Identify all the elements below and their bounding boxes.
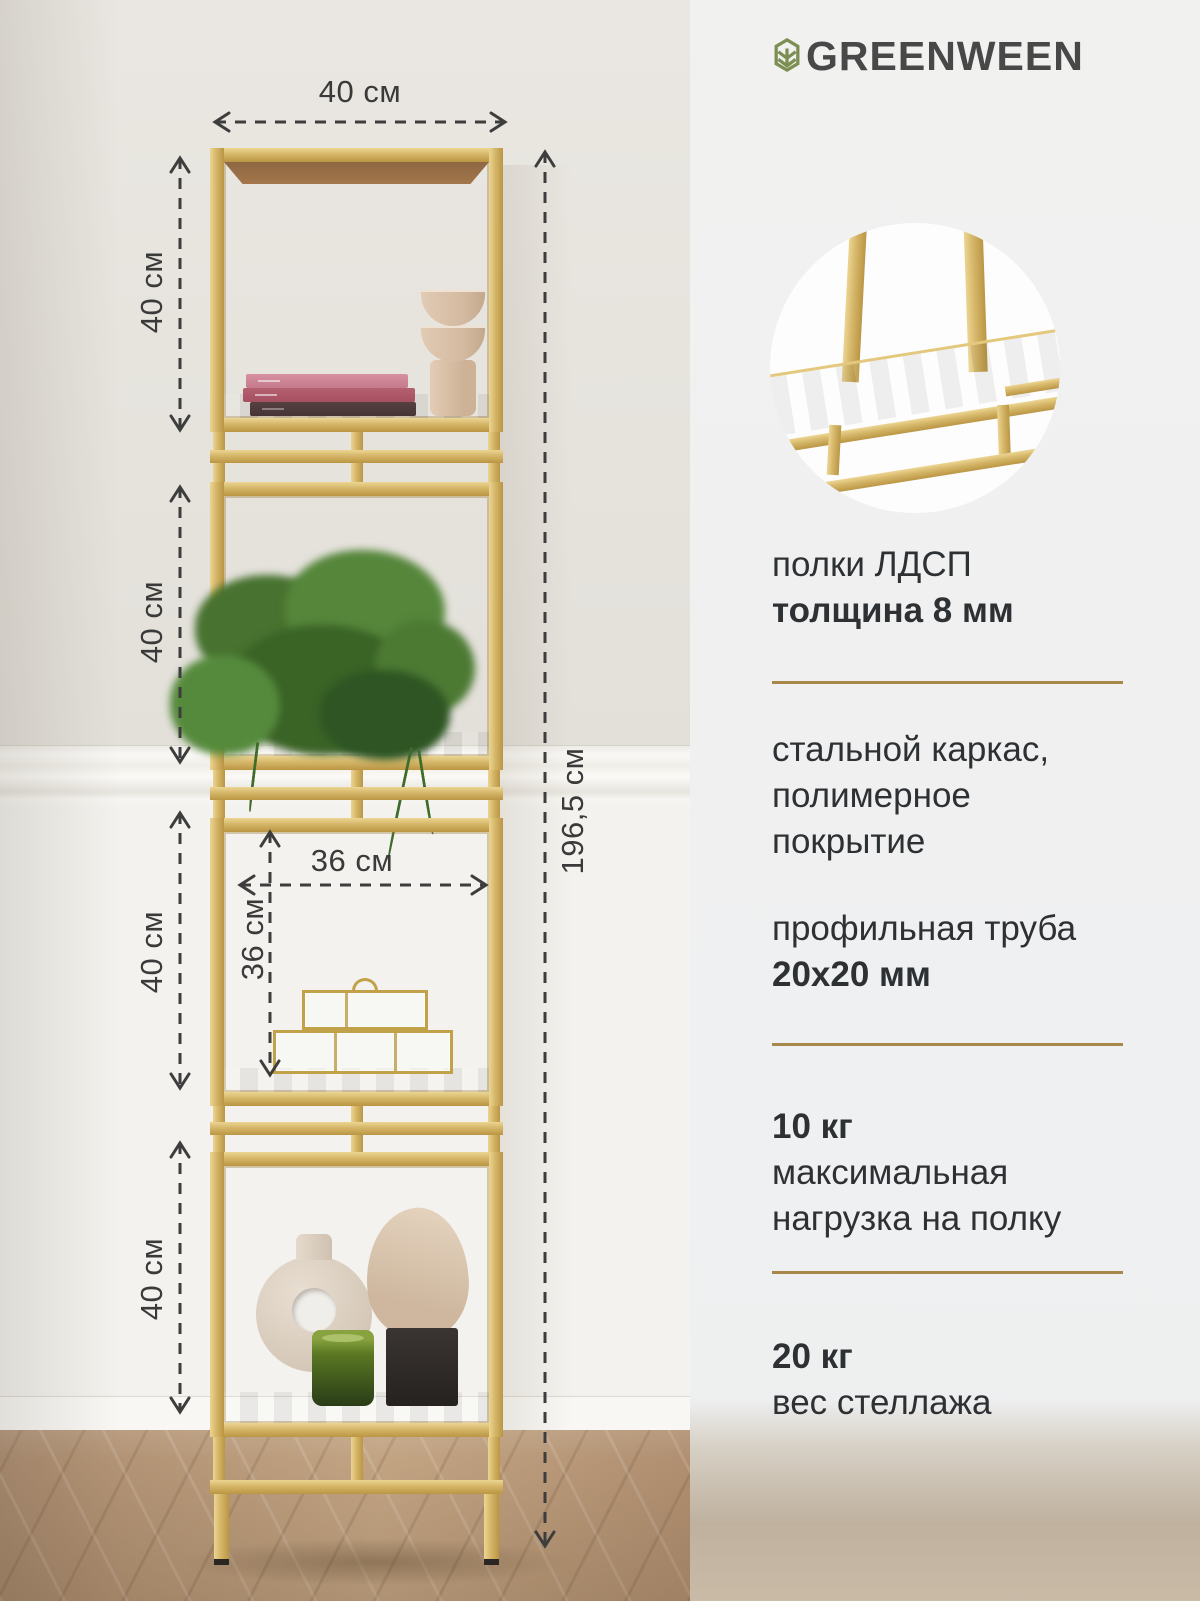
spec-weight-value: 20 кг (772, 1334, 992, 1380)
spec-frame-line2: полимерное (772, 773, 1049, 819)
dim-label-module4: 40 см (134, 1209, 170, 1349)
info-panel-floor-blur (690, 1398, 1200, 1601)
spec-frame: стальной каркас, полимерное покрытие (772, 727, 1049, 865)
dim-label-top-width: 40 см (215, 74, 505, 110)
gold-divider (772, 1043, 1123, 1046)
brand-leaf-icon (774, 37, 800, 73)
dim-label-module1: 40 см (134, 222, 170, 362)
dim-label-inner-width: 36 см (290, 843, 414, 879)
dim-label-module3: 40 см (134, 882, 170, 1022)
spec-weight: 20 кг вес стеллажа (772, 1334, 992, 1426)
gold-divider (772, 681, 1123, 684)
product-card: 40 см 40 см 40 см 40 см 40 см 196,5 см 3… (0, 0, 1200, 1601)
spec-load-line2: нагрузка на полку (772, 1196, 1061, 1242)
spec-tube-line1: профильная труба (772, 906, 1076, 952)
spec-shelves: полки ЛДСП толщина 8 мм (772, 542, 1014, 634)
spec-weight-label: вес стеллажа (772, 1380, 992, 1426)
detail-frame-post (827, 425, 842, 476)
dim-label-module2: 40 см (134, 552, 170, 692)
spec-load-value: 10 кг (772, 1104, 1061, 1150)
spec-shelves-line1: полки ЛДСП (772, 542, 1014, 588)
gold-divider (772, 1271, 1123, 1274)
dim-label-total-height: 196,5 см (555, 731, 591, 891)
spec-load: 10 кг максимальная нагрузка на полку (772, 1104, 1061, 1242)
spec-frame-line3: покрытие (772, 819, 1049, 865)
spec-frame-line1: стальной каркас, (772, 727, 1049, 773)
spec-load-line1: максимальная (772, 1150, 1061, 1196)
spec-tube-line2: 20x20 мм (772, 952, 1076, 998)
room-photo: 40 см 40 см 40 см 40 см 40 см 196,5 см 3… (0, 0, 690, 1601)
brand-logo: GREENWEEN (774, 33, 1174, 77)
spec-tube: профильная труба 20x20 мм (772, 906, 1076, 998)
spec-shelves-line2: толщина 8 мм (772, 588, 1014, 634)
detail-photo-circle (770, 223, 1060, 513)
dim-label-inner-depth: 36 см (235, 869, 271, 1009)
brand-name: GREENWEEN (806, 33, 1084, 80)
